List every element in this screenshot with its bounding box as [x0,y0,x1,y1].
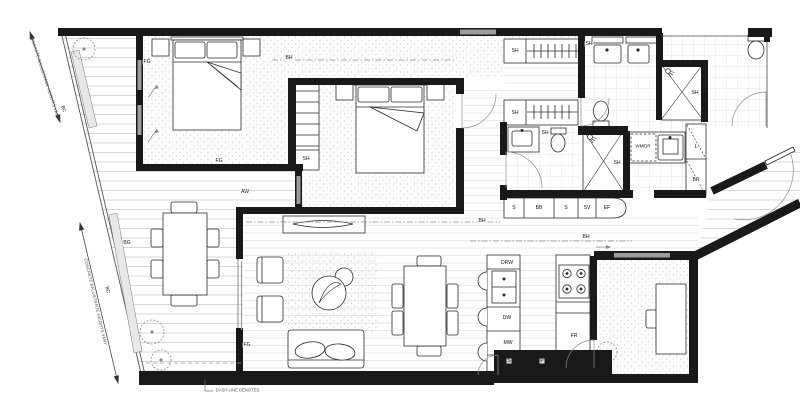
cooktop [559,265,589,298]
label-sh-robe2: SH [511,110,520,115]
label-mw: MW [503,340,514,345]
label-sh-shower2: SH [691,90,700,95]
ensuite-toilet [551,128,566,152]
robe-corridor-boards [505,63,580,101]
hall-boards [464,85,505,213]
bathroom-toilet [593,101,609,128]
label-fg-2: FG [215,158,224,163]
sofa [288,330,364,368]
label-bg: BG [122,240,131,245]
apartment-floor-plan: CONCRETE BALUSTRADE HEIGHTS VARY CONCRET… [0,0,800,403]
label-fr: FR [570,333,579,338]
label-sh-bath: SH [585,41,594,46]
dash-line-note: DASH LINE DENOTES [215,389,260,393]
label-bb: BB [535,205,544,210]
label-wmdr: WM/DR [635,145,651,149]
label-s-island: S [506,358,511,363]
label-ef: EF [603,205,611,210]
label-bh-3: BH [582,234,591,239]
ensuite-vanity [508,127,539,152]
island-stools [478,272,487,361]
right-balcony-deck [697,149,800,254]
label-sh-ens-vanity: SH [541,130,550,135]
label-fg-1: FG [143,59,152,64]
label-p: P [539,358,544,363]
label-dw: DW [502,315,512,320]
linen-broom-cupboard [686,124,706,196]
label-l: L [694,144,699,149]
label-s-2: S [563,205,568,210]
tv-unit [283,216,365,233]
label-sv: SV [583,205,592,210]
label-bh-1: BH [285,55,294,60]
label-fg-3: FG [243,342,252,347]
label-sh-bed2: SH [302,156,311,161]
label-sh-robe1: SH [511,48,520,53]
floor-plan-drawing [0,0,800,403]
label-br: BR [692,177,701,182]
label-bh-2: BH [478,218,487,223]
label-s-1: S [511,205,516,210]
label-drw: DRW [500,260,514,265]
label-sh-ens-shower: SH [613,160,622,165]
label-aw: AW [240,189,250,194]
